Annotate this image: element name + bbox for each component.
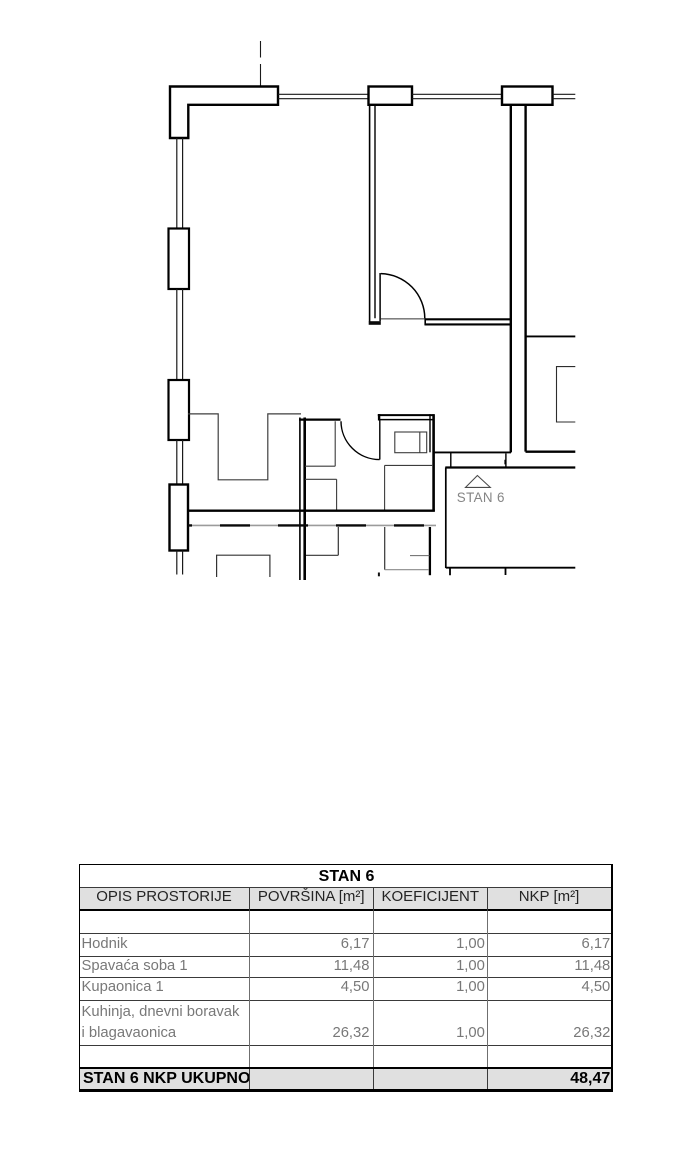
svg-text:STAN 6: STAN 6 (457, 490, 505, 505)
